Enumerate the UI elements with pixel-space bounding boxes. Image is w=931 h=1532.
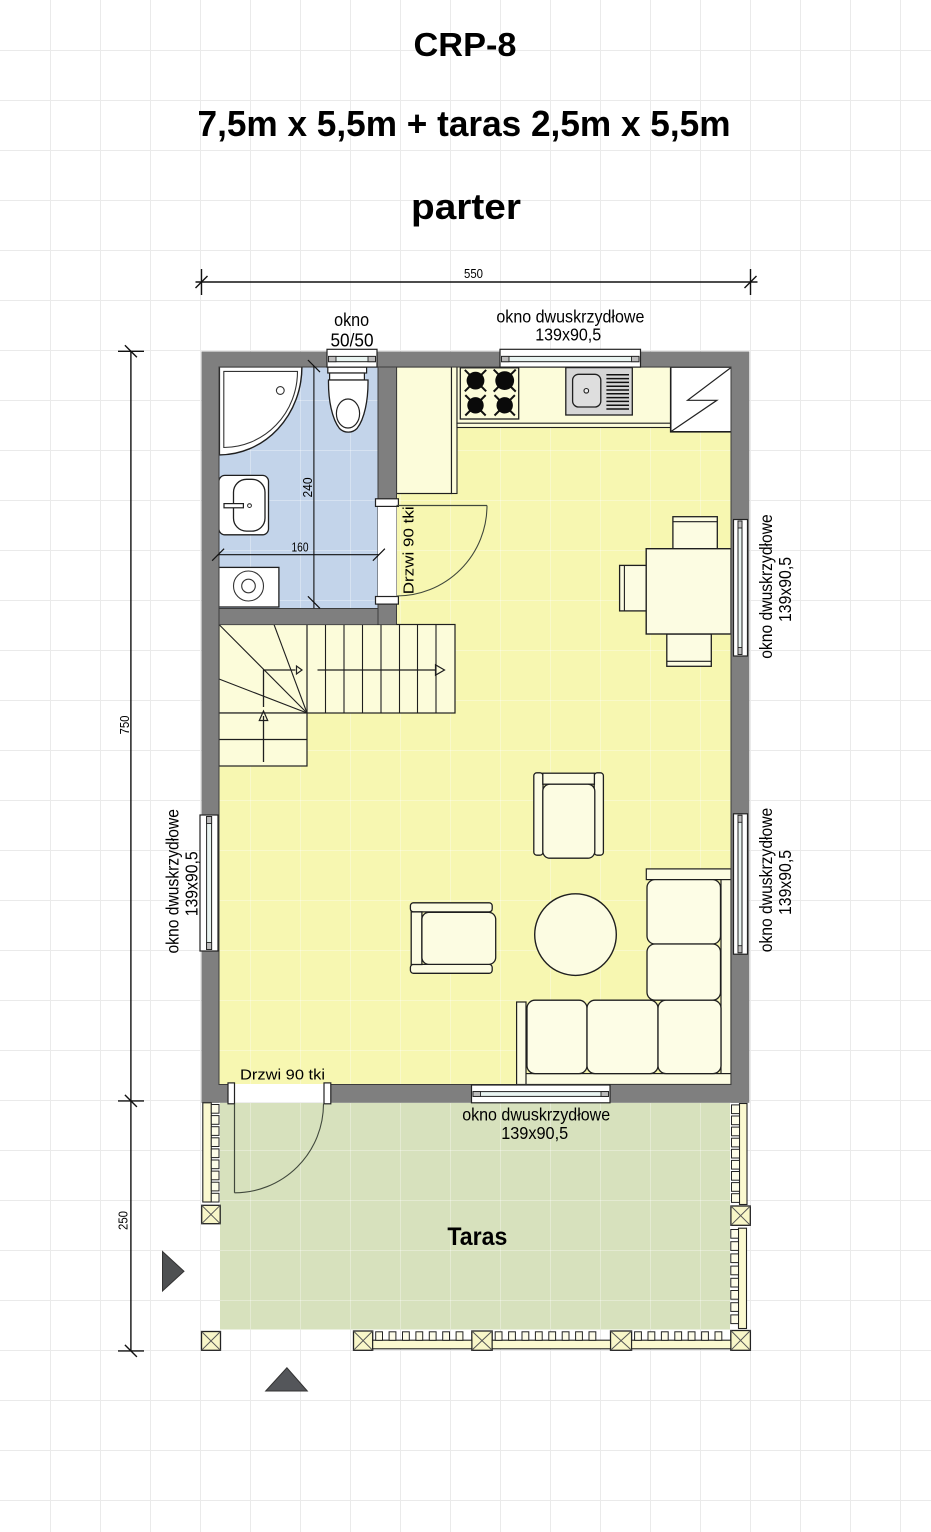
svg-text:CRP-8: CRP-8 [414,26,517,63]
svg-text:139x90,5: 139x90,5 [182,851,202,916]
svg-text:okno dwuskrzydłowe: okno dwuskrzydłowe [756,514,776,659]
svg-text:50/50: 50/50 [331,330,374,350]
svg-text:250: 250 [116,1211,131,1230]
svg-text:550: 550 [464,266,483,281]
svg-text:okno dwuskrzydłowe: okno dwuskrzydłowe [756,808,776,953]
svg-text:parter: parter [411,186,521,227]
svg-text:160: 160 [292,540,309,555]
svg-text:Drzwi 90 tki: Drzwi 90 tki [240,1067,325,1084]
svg-text:okno dwuskrzydłowe: okno dwuskrzydłowe [462,1104,610,1124]
svg-text:139x90,5: 139x90,5 [535,325,601,345]
svg-text:okno: okno [334,310,369,330]
svg-text:7,5m x 5,5m + taras 2,5m x 5,5: 7,5m x 5,5m + taras 2,5m x 5,5m [198,103,731,144]
svg-text:okno dwuskrzydłowe: okno dwuskrzydłowe [163,809,183,954]
svg-text:750: 750 [117,716,132,735]
svg-text:139x90,5: 139x90,5 [775,557,795,622]
svg-text:Drzwi 90 tki: Drzwi 90 tki [400,506,417,594]
svg-text:139x90,5: 139x90,5 [501,1123,568,1143]
svg-text:okno dwuskrzydłowe: okno dwuskrzydłowe [496,306,644,326]
svg-text:Taras: Taras [447,1223,507,1251]
svg-text:240: 240 [300,478,315,498]
svg-text:139x90,5: 139x90,5 [775,850,795,915]
